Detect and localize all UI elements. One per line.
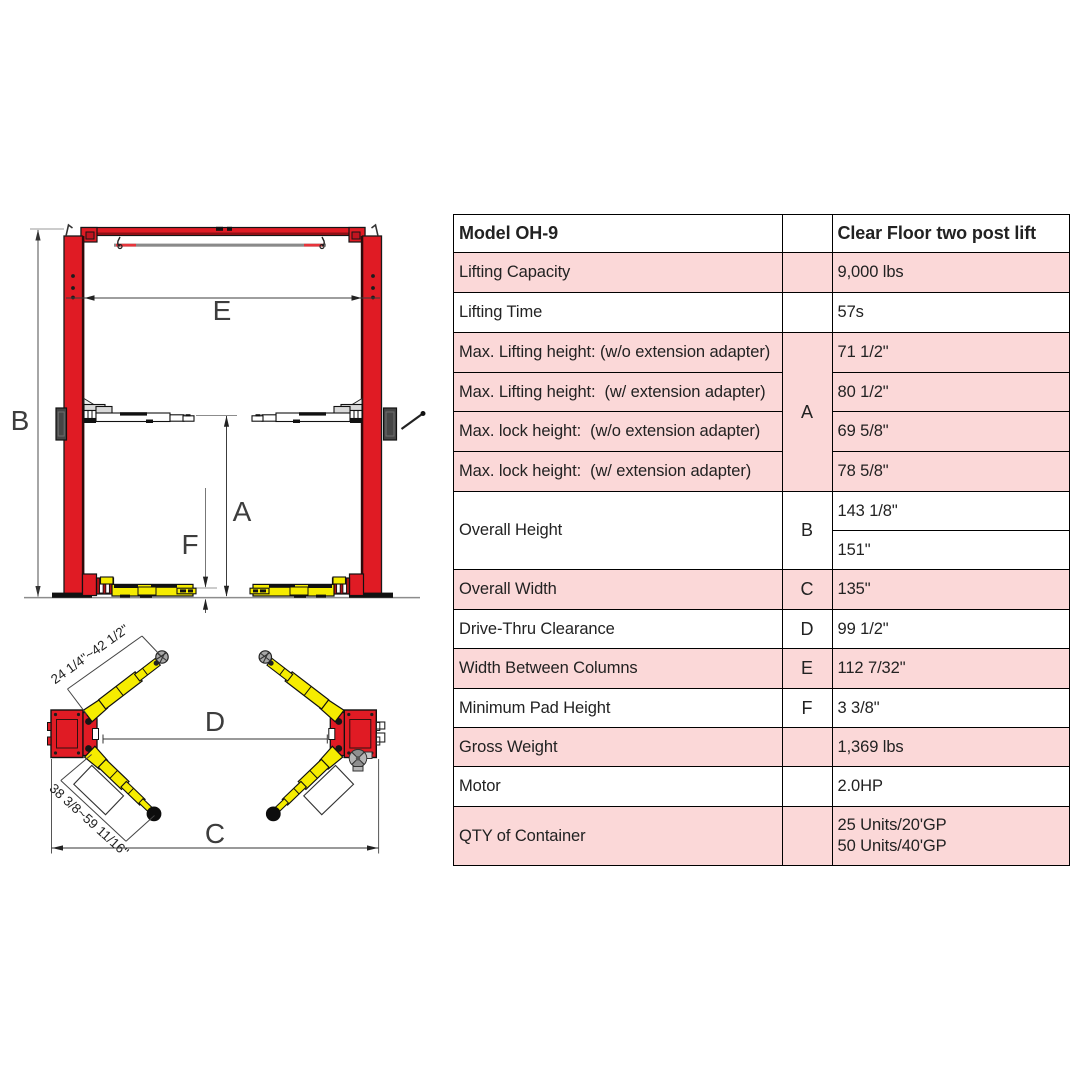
svg-text:A: A	[233, 496, 252, 527]
svg-text:F: F	[181, 529, 198, 560]
svg-text:24 1/4"~42 1/2": 24 1/4"~42 1/2"	[48, 621, 132, 687]
svg-text:E: E	[213, 295, 232, 326]
svg-text:D: D	[205, 706, 225, 737]
svg-text:C: C	[205, 818, 225, 849]
svg-text:B: B	[11, 405, 30, 436]
